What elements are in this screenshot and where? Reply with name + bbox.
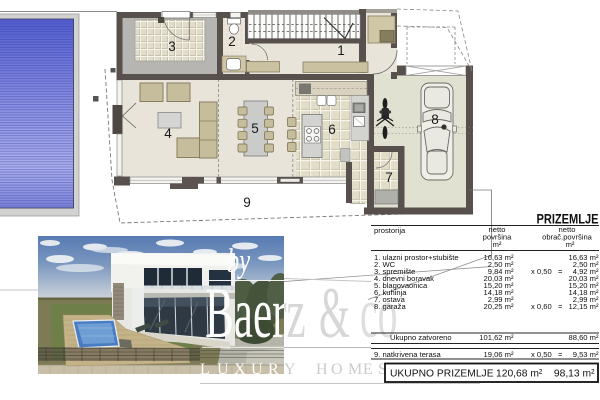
svg-text:x 0,50: x 0,50 (531, 267, 552, 276)
svg-text:=: = (558, 267, 563, 276)
svg-text:7: 7 (385, 170, 393, 185)
svg-text:prostorija: prostorija (374, 226, 406, 235)
svg-text:R: R (268, 361, 279, 378)
svg-text:M: M (348, 361, 362, 378)
svg-text:98,13 m²: 98,13 m² (554, 369, 595, 380)
svg-text:19,06 m²: 19,06 m² (484, 350, 514, 359)
svg-text:x 0,50: x 0,50 (531, 350, 552, 359)
svg-text:101,62 m²: 101,62 m² (479, 333, 514, 342)
svg-text:U: U (251, 361, 263, 378)
svg-text:9. natkrivena terasa: 9. natkrivena terasa (374, 350, 441, 359)
svg-text:88,60 m²: 88,60 m² (569, 333, 599, 342)
svg-text:X: X (234, 361, 246, 378)
svg-text:=: = (558, 350, 563, 359)
svg-text:1: 1 (337, 43, 345, 58)
svg-text:m²: m² (566, 240, 575, 249)
svg-text:20,25 m²: 20,25 m² (484, 302, 514, 311)
svg-text:&: & (319, 273, 350, 354)
svg-text:U: U (217, 361, 229, 378)
svg-text:Ukupno zatvoreno: Ukupno zatvoreno (390, 333, 452, 342)
svg-text:=: = (558, 302, 563, 311)
svg-text:L: L (200, 361, 210, 378)
svg-text:O: O (331, 361, 343, 378)
svg-text:5: 5 (251, 121, 259, 136)
svg-text:m²: m² (493, 240, 502, 249)
svg-text:9,53 m²: 9,53 m² (573, 350, 599, 359)
svg-text:8. garaža: 8. garaža (374, 302, 406, 311)
svg-text:12,15 m²: 12,15 m² (569, 302, 599, 311)
svg-text:UKUPNO PRIZEMLJE: UKUPNO PRIZEMLJE (390, 369, 494, 380)
svg-text:4: 4 (164, 126, 172, 141)
svg-text:120,68 m²: 120,68 m² (496, 369, 543, 380)
svg-text:8: 8 (431, 112, 439, 127)
svg-text:Y: Y (284, 361, 296, 378)
svg-text:3: 3 (168, 39, 176, 54)
svg-text:H: H (316, 361, 328, 378)
svg-text:2: 2 (228, 34, 236, 49)
svg-text:E: E (363, 361, 373, 378)
svg-text:9: 9 (243, 195, 251, 210)
svg-text:x 0,60: x 0,60 (531, 302, 552, 311)
svg-text:6: 6 (328, 122, 336, 137)
